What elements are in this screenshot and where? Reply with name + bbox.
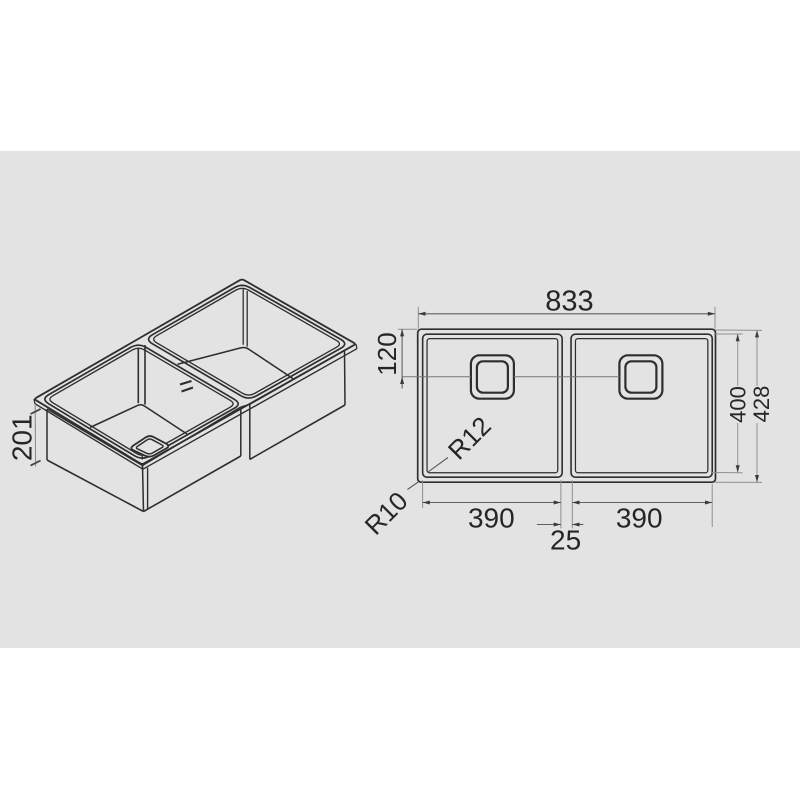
svg-text:833: 833 bbox=[545, 286, 593, 318]
svg-text:R12: R12 bbox=[442, 411, 497, 466]
svg-text:390: 390 bbox=[616, 503, 663, 534]
svg-text:400: 400 bbox=[726, 386, 751, 423]
svg-text:428: 428 bbox=[749, 386, 774, 423]
svg-text:25: 25 bbox=[550, 525, 581, 556]
svg-text:201: 201 bbox=[6, 414, 37, 461]
svg-text:R10: R10 bbox=[359, 486, 414, 541]
svg-text:120: 120 bbox=[372, 332, 402, 375]
svg-text:390: 390 bbox=[468, 503, 515, 534]
